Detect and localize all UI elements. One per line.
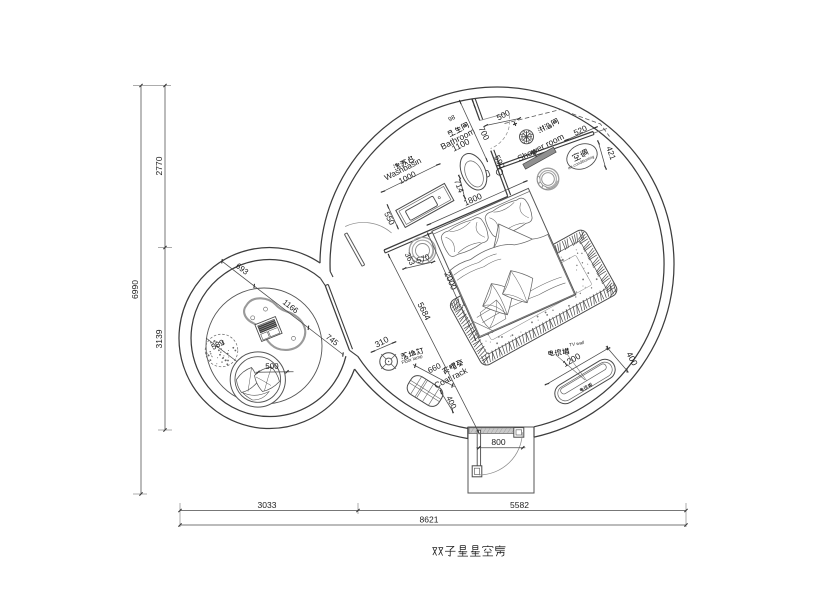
svg-text:3139: 3139 [154,329,164,348]
svg-text:5582: 5582 [510,500,529,510]
svg-text:6990: 6990 [130,280,140,299]
svg-text:8621: 8621 [420,515,439,525]
svg-text:800: 800 [491,437,505,447]
svg-text:2770: 2770 [154,156,164,175]
svg-text:3033: 3033 [258,500,277,510]
svg-text:500: 500 [265,362,279,371]
